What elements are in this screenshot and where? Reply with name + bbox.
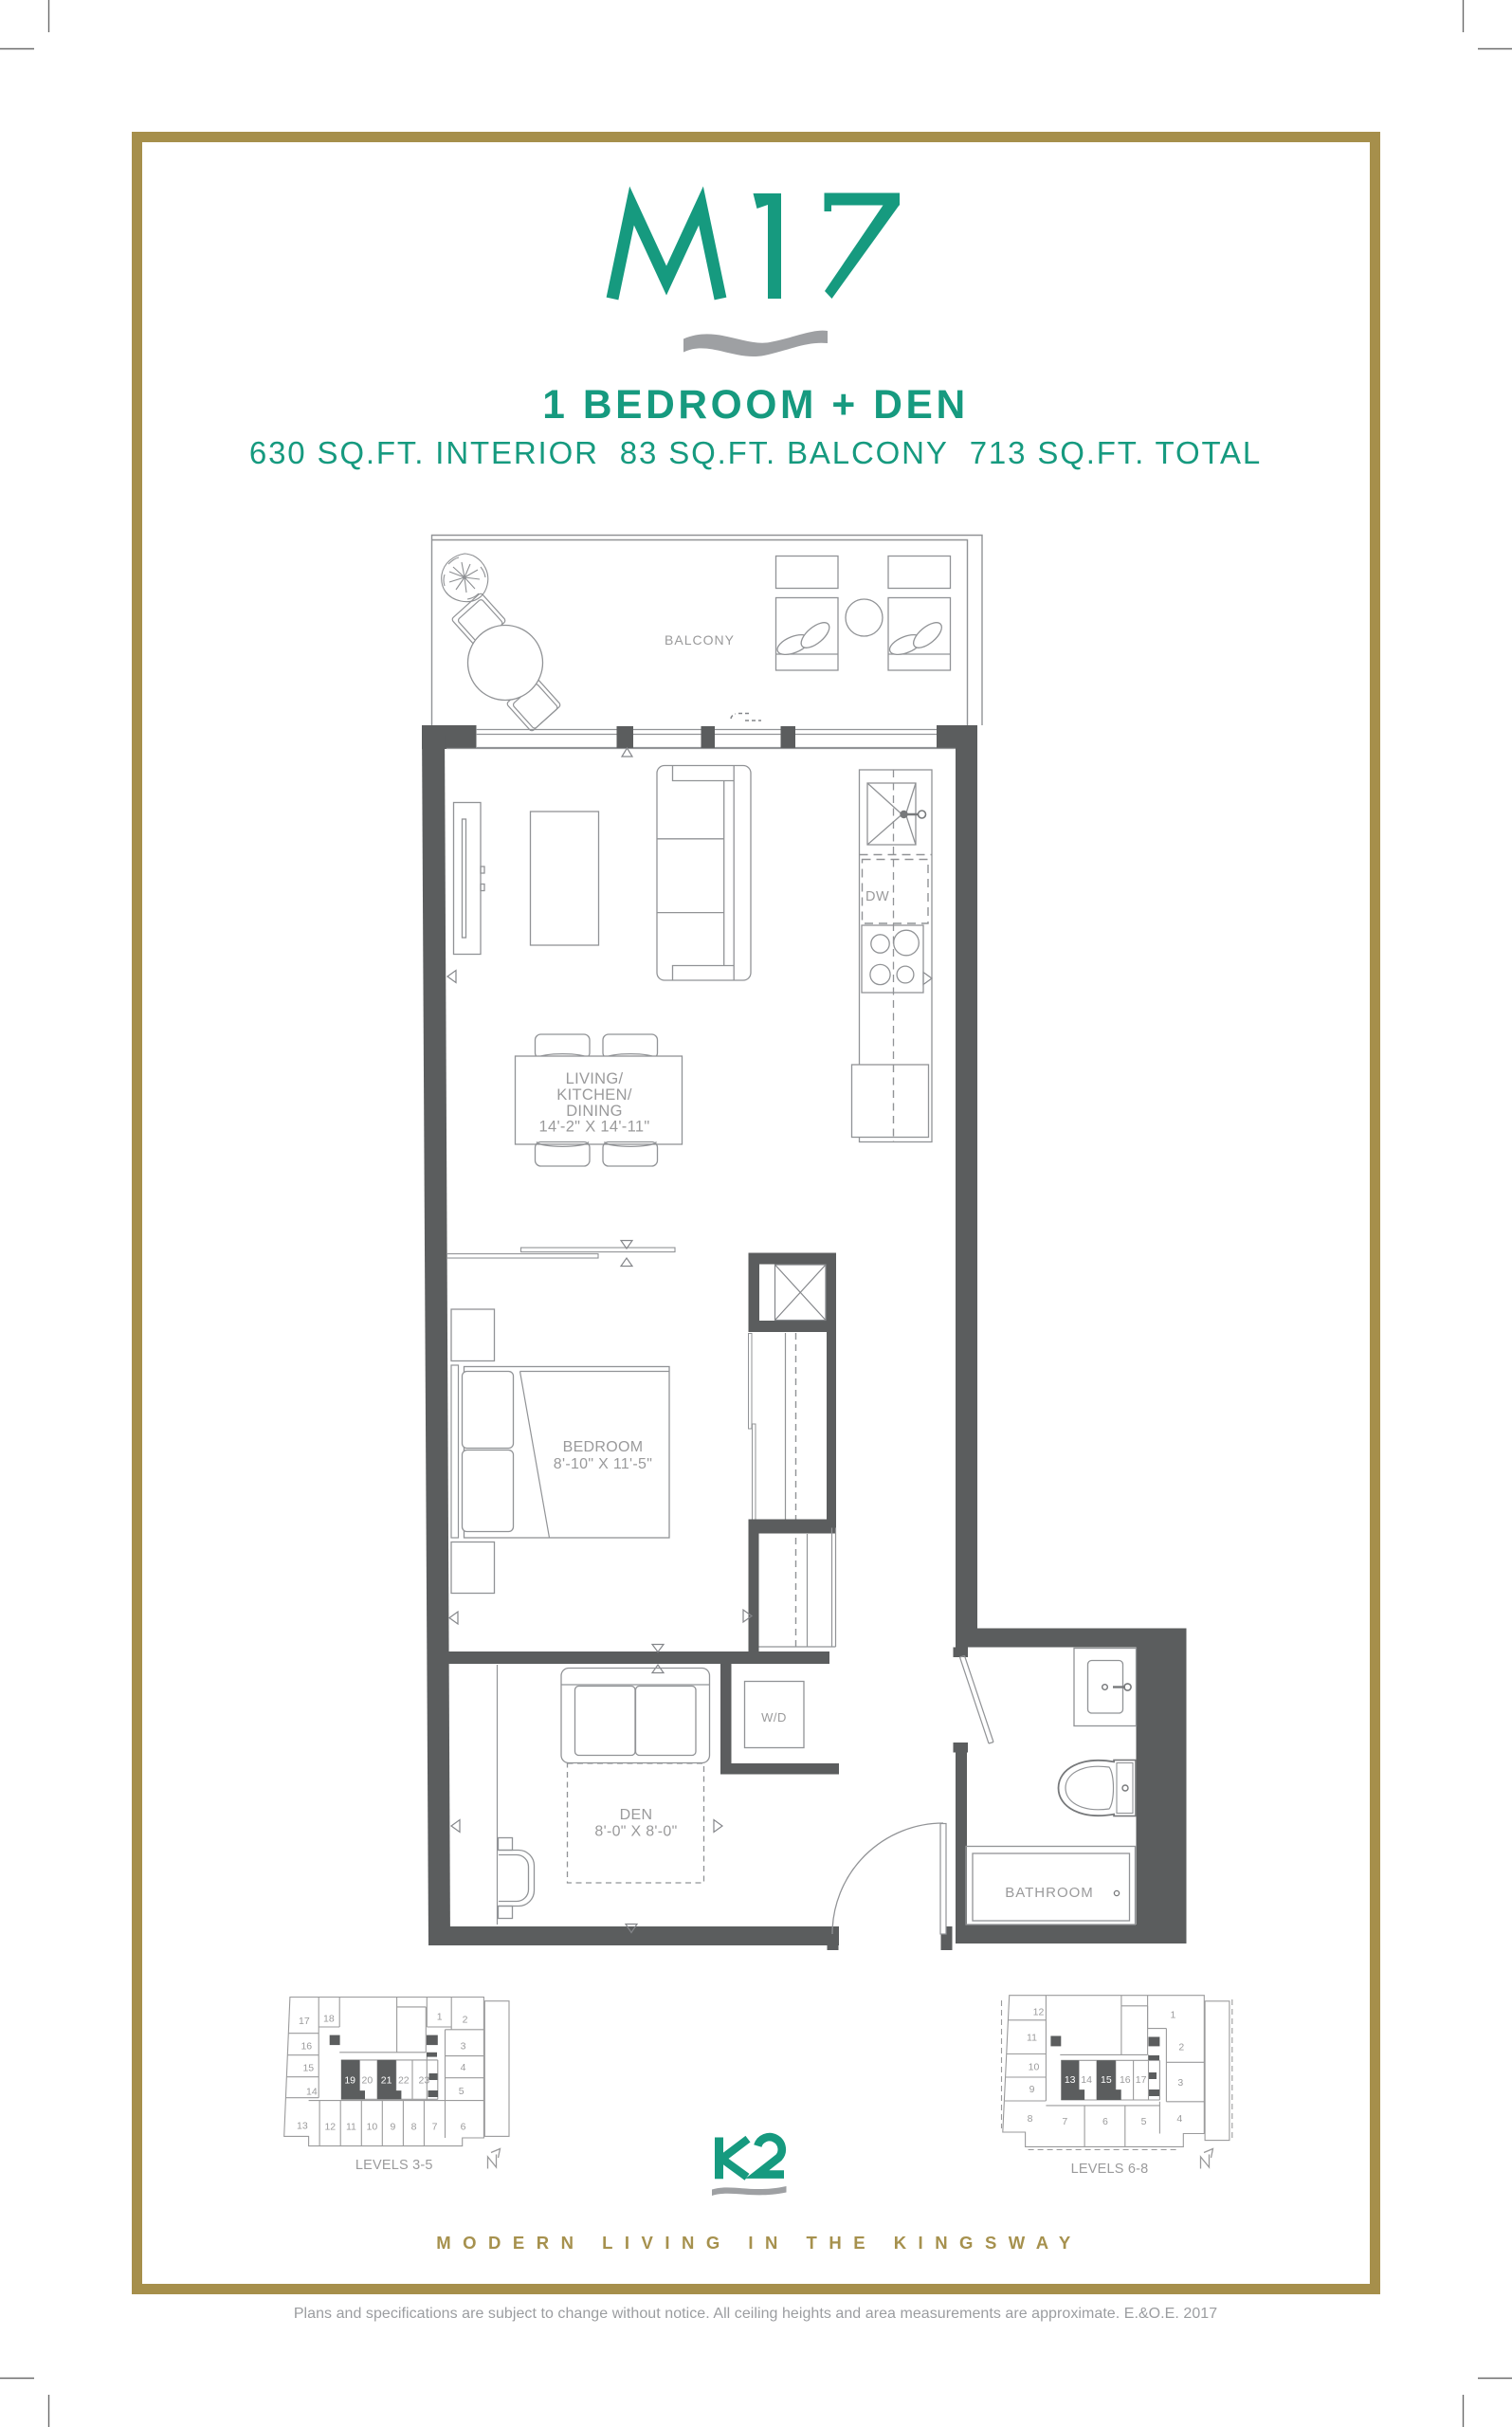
svg-text:DW: DW [865, 889, 889, 904]
svg-text:18: 18 [323, 2014, 335, 2025]
svg-text:8'-10" X 11'-5": 8'-10" X 11'-5" [554, 1456, 652, 1472]
svg-text:12: 12 [324, 2122, 336, 2133]
svg-text:6: 6 [461, 2122, 466, 2133]
svg-text:14'-2" X 14'-11": 14'-2" X 14'-11" [539, 1119, 650, 1136]
svg-text:W/D: W/D [761, 1710, 787, 1724]
svg-text:11: 11 [346, 2122, 356, 2133]
svg-text:BALCONY: BALCONY [665, 632, 735, 648]
svg-text:15: 15 [1101, 2074, 1112, 2086]
svg-text:9: 9 [390, 2122, 395, 2133]
svg-text:4: 4 [1176, 2113, 1182, 2125]
svg-text:14: 14 [306, 2086, 318, 2097]
svg-text:2: 2 [1178, 2041, 1184, 2053]
svg-text:8'-0" X 8'-0": 8'-0" X 8'-0" [594, 1824, 677, 1840]
svg-text:7: 7 [1062, 2116, 1067, 2127]
svg-text:5: 5 [459, 2086, 465, 2097]
svg-text:LIVING/: LIVING/ [566, 1070, 624, 1087]
svg-text:8: 8 [411, 2122, 417, 2133]
svg-text:16: 16 [301, 2041, 312, 2053]
svg-text:17: 17 [299, 2016, 310, 2027]
svg-text:BEDROOM: BEDROOM [563, 1439, 644, 1455]
svg-text:4: 4 [461, 2062, 466, 2073]
svg-text:Plans and specifications are s: Plans and specifications are subject to … [294, 2306, 1217, 2322]
svg-text:15: 15 [302, 2063, 314, 2074]
svg-text:LEVELS 6-8: LEVELS 6-8 [1071, 2162, 1149, 2177]
svg-text:MODERN LIVING IN THE KINGSWAY: MODERN LIVING IN THE KINGSWAY [436, 2233, 1082, 2253]
svg-text:21: 21 [381, 2075, 392, 2087]
svg-text:1 BEDROOM + DEN: 1 BEDROOM + DEN [542, 383, 969, 428]
svg-text:7: 7 [432, 2122, 438, 2133]
svg-text:6: 6 [1102, 2116, 1108, 2127]
svg-text:10: 10 [1029, 2061, 1040, 2072]
svg-text:1: 1 [437, 2012, 443, 2023]
svg-text:12: 12 [1033, 2007, 1045, 2018]
svg-text:LEVELS 3-5: LEVELS 3-5 [355, 2158, 433, 2173]
svg-text:19: 19 [344, 2075, 355, 2087]
svg-text:13: 13 [297, 2121, 308, 2132]
svg-text:630 SQ.FT. INTERIOR 83 SQ.FT.: 630 SQ.FT. INTERIOR 83 SQ.FT. BALCONY 71… [249, 435, 1262, 470]
svg-text:3: 3 [1177, 2077, 1183, 2089]
svg-text:2: 2 [463, 2014, 468, 2025]
svg-text:5: 5 [1141, 2116, 1147, 2127]
svg-text:13: 13 [1065, 2074, 1076, 2086]
svg-text:9: 9 [1029, 2084, 1035, 2095]
svg-text:11: 11 [1027, 2033, 1037, 2044]
svg-text:14: 14 [1081, 2074, 1092, 2086]
svg-text:3: 3 [461, 2041, 466, 2053]
svg-text:23: 23 [419, 2075, 430, 2087]
svg-text:16: 16 [1120, 2074, 1131, 2086]
svg-text:DEN: DEN [620, 1807, 653, 1823]
svg-text:BATHROOM: BATHROOM [1005, 1885, 1094, 1901]
svg-text:22: 22 [398, 2075, 410, 2087]
svg-text:DINING: DINING [566, 1103, 623, 1120]
svg-text:20: 20 [362, 2075, 373, 2087]
svg-text:1: 1 [1170, 2010, 1175, 2021]
svg-text:KITCHEN/: KITCHEN/ [556, 1086, 632, 1104]
svg-text:17: 17 [1136, 2074, 1147, 2086]
svg-text:10: 10 [367, 2122, 378, 2133]
svg-text:8: 8 [1028, 2113, 1033, 2125]
